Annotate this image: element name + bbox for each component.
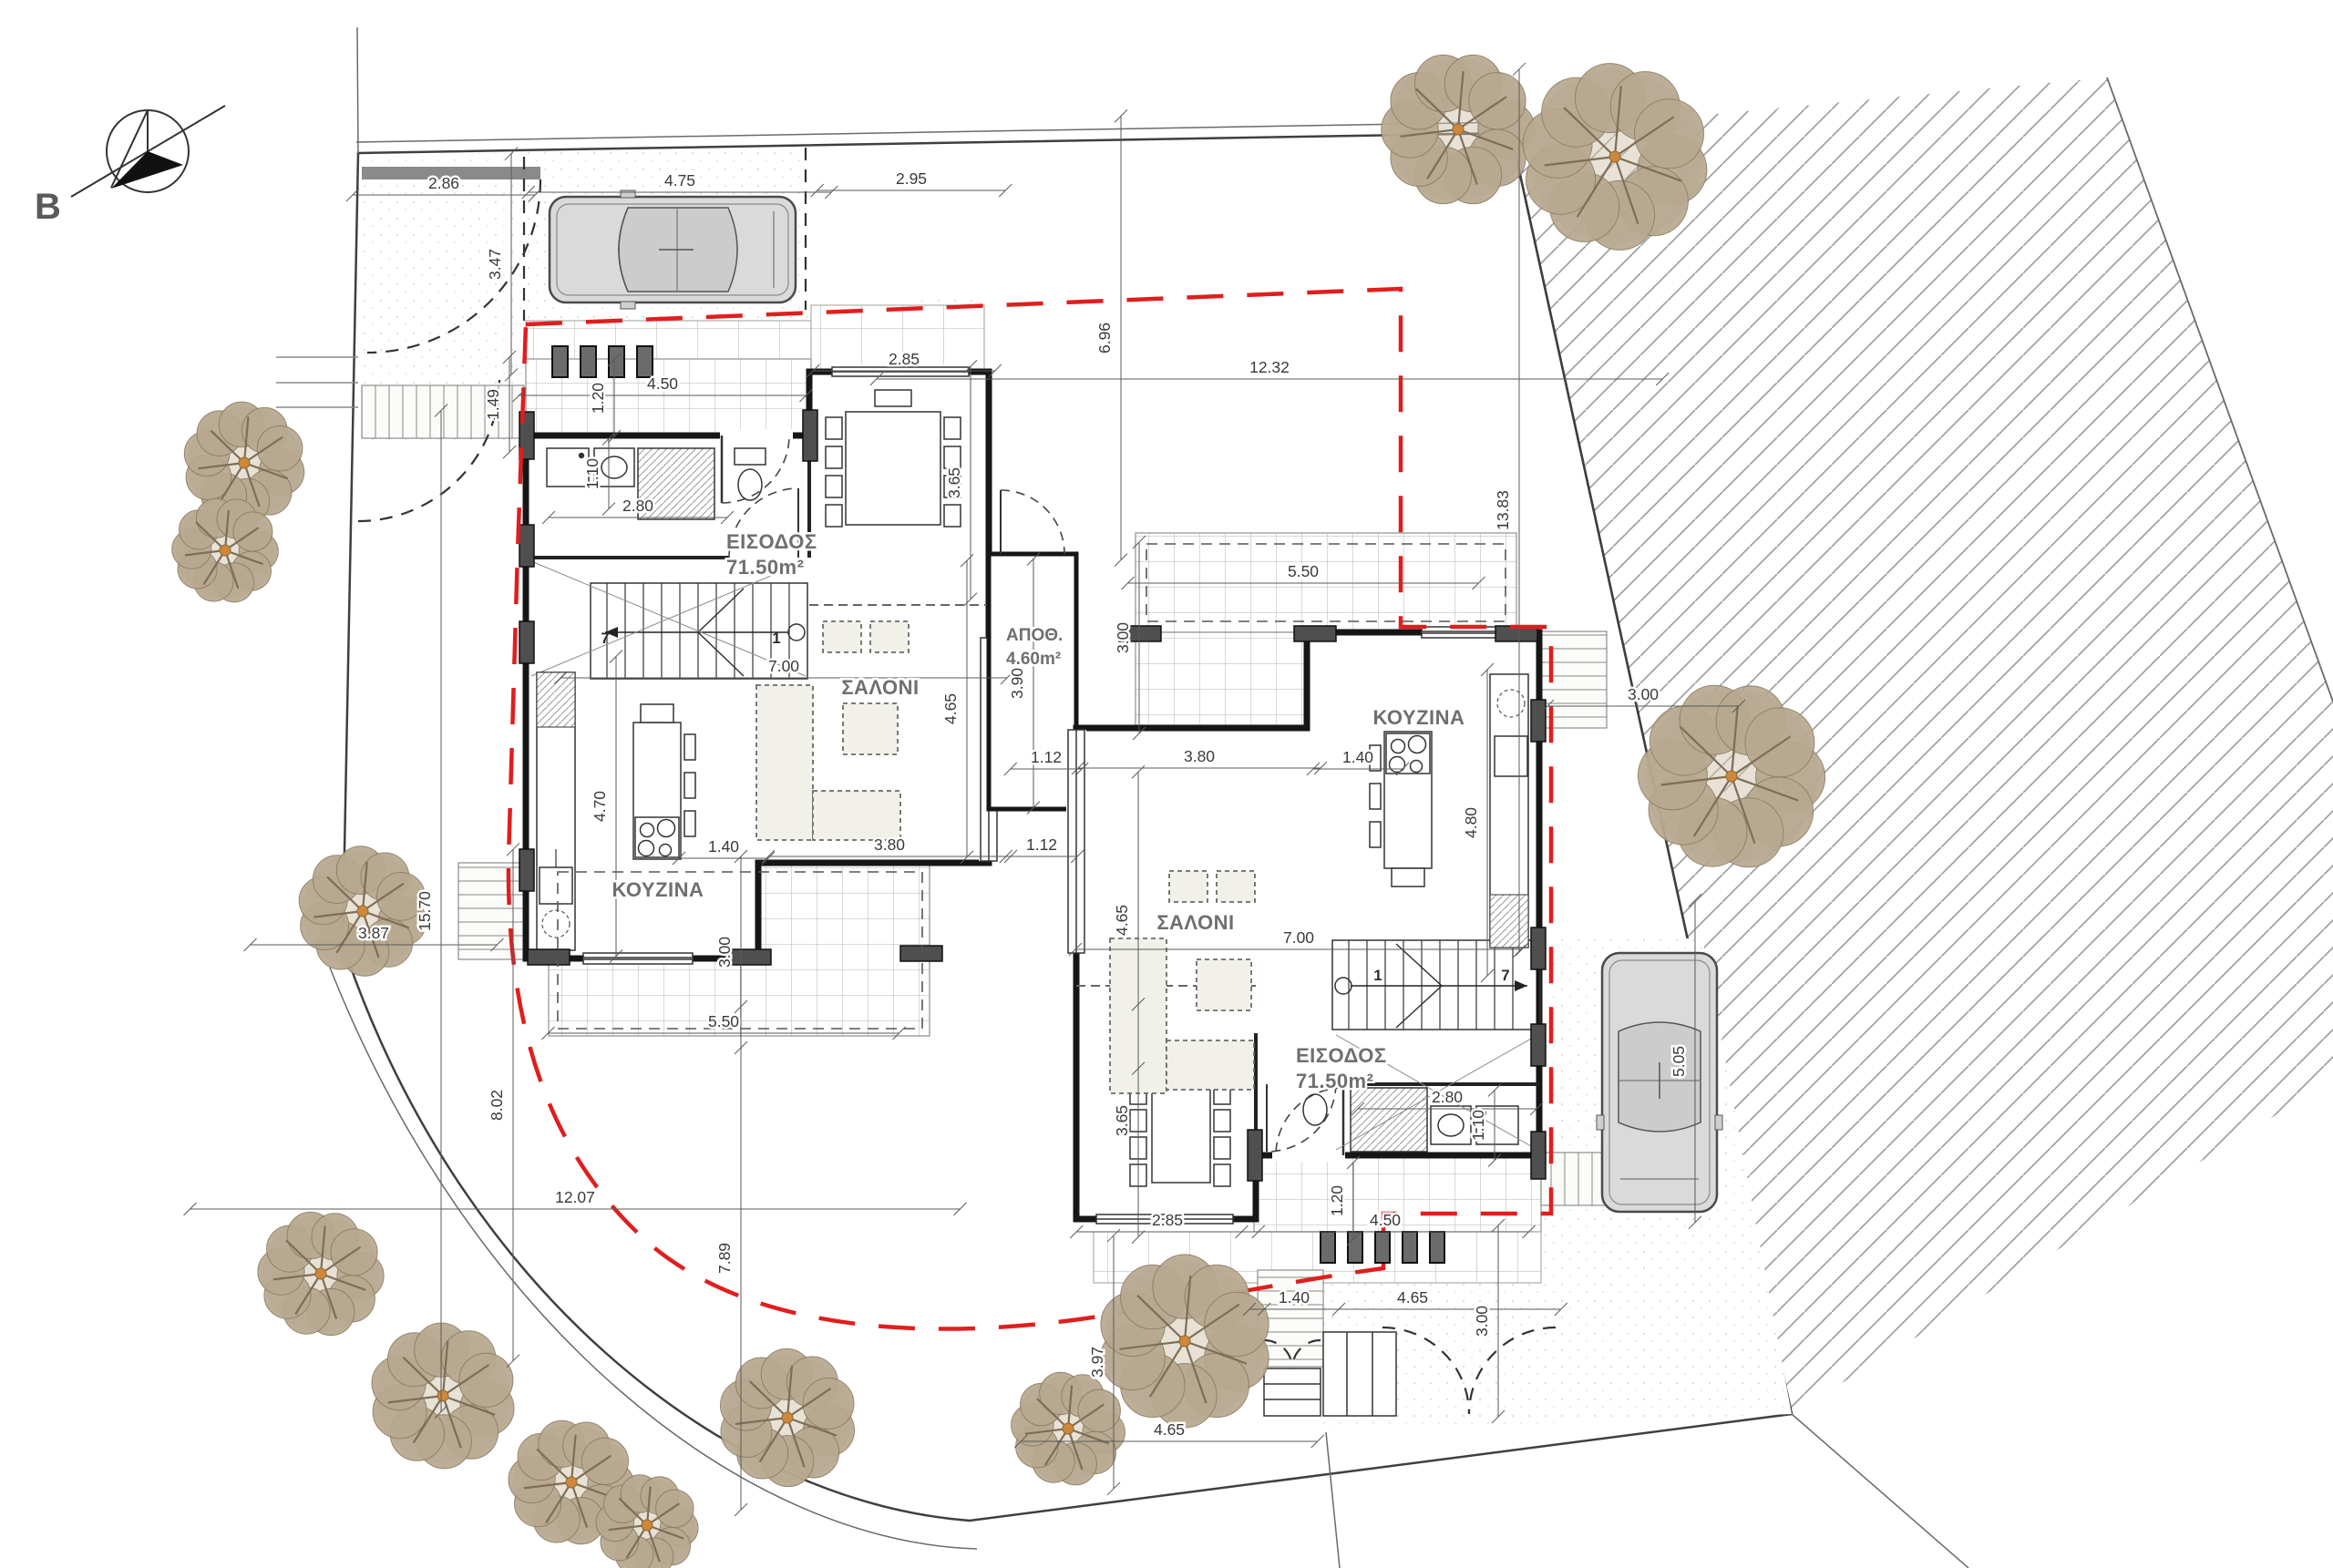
svg-text:1.10: 1.10 [1469,1110,1487,1141]
pergola-post [1321,1232,1335,1263]
kitchen-island-right [1384,732,1432,868]
svg-text:1.10: 1.10 [583,458,601,489]
stair-number: 1 [1373,967,1382,984]
tree [1101,1255,1269,1428]
svg-text:4.65: 4.65 [941,693,960,724]
tree [1638,685,1824,867]
svg-text:3.80: 3.80 [1184,747,1215,765]
svg-text:13.83: 13.83 [1494,490,1512,530]
svg-text:4.65: 4.65 [1154,1420,1185,1439]
dimension: 12.07 [184,1188,967,1215]
room-label: ΕΙΣΟΔΟΣ [1296,1044,1387,1067]
dimension: 2.95 [811,169,1012,197]
svg-text:4.75: 4.75 [664,171,695,190]
stair-number: 7 [1501,967,1509,984]
svg-text:3.90: 3.90 [1008,668,1026,699]
tree [299,846,427,976]
tree [258,1212,384,1335]
svg-text:3.80: 3.80 [874,835,905,854]
svg-text:12.32: 12.32 [1249,358,1290,376]
svg-text:2.86: 2.86 [428,174,459,192]
pergola-post [581,346,596,377]
svg-text:1.12: 1.12 [1031,748,1062,766]
svg-text:3.00: 3.00 [1473,1306,1491,1337]
svg-text:4.50: 4.50 [647,374,678,393]
room-label: 71.50m² [726,556,804,579]
tree [172,498,279,602]
svg-text:7.89: 7.89 [715,1243,734,1274]
pergola-post [552,346,568,377]
svg-text:4.65: 4.65 [1113,905,1131,936]
pergola-post [1403,1232,1417,1263]
sink-left [540,867,572,904]
svg-text:1.40: 1.40 [1279,1288,1310,1307]
svg-text:4.50: 4.50 [1370,1211,1401,1229]
svg-text:5.50: 5.50 [708,1012,739,1030]
svg-text:2.85: 2.85 [1152,1211,1183,1229]
svg-text:2.95: 2.95 [896,169,927,188]
svg-text:2.80: 2.80 [1432,1088,1463,1106]
svg-text:3.97: 3.97 [1088,1347,1106,1378]
tree [596,1475,698,1568]
svg-text:3.87: 3.87 [358,924,389,942]
tree [1382,55,1535,203]
room-label: ΚΟΥΖΙΝΑ [1373,706,1465,729]
pergola-post [637,346,653,377]
room-label: ΣΑΛΟΝΙ [1156,911,1234,934]
svg-text:5.50: 5.50 [1288,562,1319,580]
svg-text:3.65: 3.65 [945,467,963,498]
car-left [550,190,796,309]
sink-right [1495,736,1527,776]
pergola-post [1430,1232,1444,1263]
svg-text:5.05: 5.05 [1670,1046,1688,1077]
svg-text:4.70: 4.70 [591,791,609,822]
svg-text:1.40: 1.40 [708,837,739,856]
svg-text:2.80: 2.80 [622,497,653,515]
svg-text:1.12: 1.12 [1026,835,1057,854]
car-right [1597,953,1722,1212]
svg-text:3.47: 3.47 [486,249,504,280]
pergola-post [609,346,624,377]
room-label: ΣΑΛΟΝΙ [841,676,919,699]
svg-text:7.00: 7.00 [768,657,799,675]
svg-text:2.85: 2.85 [889,350,920,368]
room-label: ΚΟΥΖΙΝΑ [612,878,704,901]
compass-label: B [35,187,61,227]
compass: B [35,106,225,227]
pergola-post [1375,1232,1390,1263]
svg-text:4.65: 4.65 [1397,1288,1428,1307]
tree [372,1323,514,1469]
svg-text:12.07: 12.07 [555,1188,595,1206]
stair-number: 1 [772,630,780,647]
svg-text:3.00: 3.00 [1628,685,1659,703]
svg-text:1.20: 1.20 [589,383,607,414]
dimension: 15.70 [416,405,447,1419]
tree [1012,1372,1125,1485]
svg-text:8.02: 8.02 [488,1090,506,1121]
svg-text:3.00: 3.00 [715,937,734,968]
room-label: 71.50m² [1296,1070,1373,1092]
svg-text:3.00: 3.00 [1114,622,1132,653]
kitchen-island-left [633,723,681,859]
svg-text:4.80: 4.80 [1462,807,1480,838]
svg-text:6.96: 6.96 [1095,323,1114,354]
floor-plan-page: B 2.864.752.953.471.494.501.202.853.652.… [0,0,2333,1568]
dimension: 6.96 [1095,109,1127,566]
svg-text:1.20: 1.20 [1328,1185,1346,1216]
stair-number: 7 [601,630,609,647]
svg-text:1.49: 1.49 [484,389,502,420]
room-label: 4.60m² [1006,650,1061,669]
svg-text:1.40: 1.40 [1342,748,1373,766]
pergola-post [1348,1232,1362,1263]
floor-plan-canvas: B 2.864.752.953.471.494.501.202.853.652.… [0,0,2333,1568]
room-label: ΕΙΣΟΔΟΣ [726,530,817,553]
room-label: ΑΠΟΘ. [1006,626,1063,645]
svg-text:3.65: 3.65 [1113,1105,1131,1136]
svg-text:15.70: 15.70 [416,891,434,931]
svg-text:7.00: 7.00 [1283,928,1314,947]
